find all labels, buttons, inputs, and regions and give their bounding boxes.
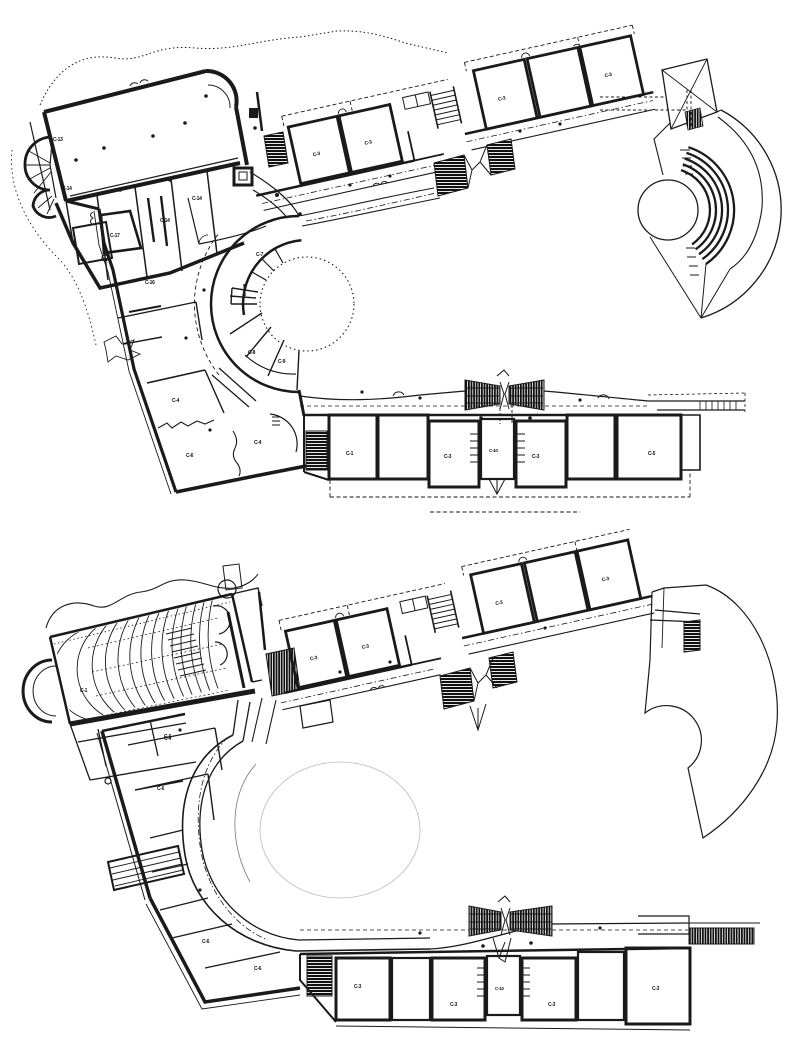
svg-text:C-14: C-14 bbox=[192, 196, 202, 202]
svg-text:C-10: C-10 bbox=[495, 986, 504, 991]
svg-text:C-3: C-3 bbox=[354, 984, 362, 990]
svg-text:C-13: C-13 bbox=[53, 137, 63, 143]
svg-text:C-3: C-3 bbox=[444, 454, 452, 460]
svg-text:C-6: C-6 bbox=[164, 734, 172, 740]
svg-text:C-6: C-6 bbox=[202, 939, 210, 945]
svg-text:C-1: C-1 bbox=[80, 688, 88, 694]
svg-text:C-3: C-3 bbox=[548, 1002, 556, 1008]
svg-text:C-6: C-6 bbox=[254, 966, 262, 972]
svg-text:C-6: C-6 bbox=[186, 453, 194, 459]
svg-text:C-3: C-3 bbox=[652, 986, 660, 992]
svg-text:C-17: C-17 bbox=[110, 233, 120, 239]
svg-text:C-3: C-3 bbox=[532, 454, 540, 460]
svg-text:C-10: C-10 bbox=[489, 448, 498, 453]
svg-text:C-6: C-6 bbox=[157, 786, 165, 792]
svg-text:C-14: C-14 bbox=[62, 186, 72, 192]
svg-text:C-1: C-1 bbox=[346, 451, 354, 457]
svg-text:C-5: C-5 bbox=[648, 451, 656, 457]
svg-text:C-16: C-16 bbox=[145, 280, 155, 286]
svg-text:C-4: C-4 bbox=[254, 440, 262, 446]
svg-text:C-3: C-3 bbox=[450, 1002, 458, 1008]
svg-text:C-9: C-9 bbox=[278, 359, 286, 365]
svg-text:C-7: C-7 bbox=[256, 252, 264, 258]
svg-text:C-8: C-8 bbox=[248, 350, 256, 356]
svg-text:C-4: C-4 bbox=[172, 398, 180, 404]
